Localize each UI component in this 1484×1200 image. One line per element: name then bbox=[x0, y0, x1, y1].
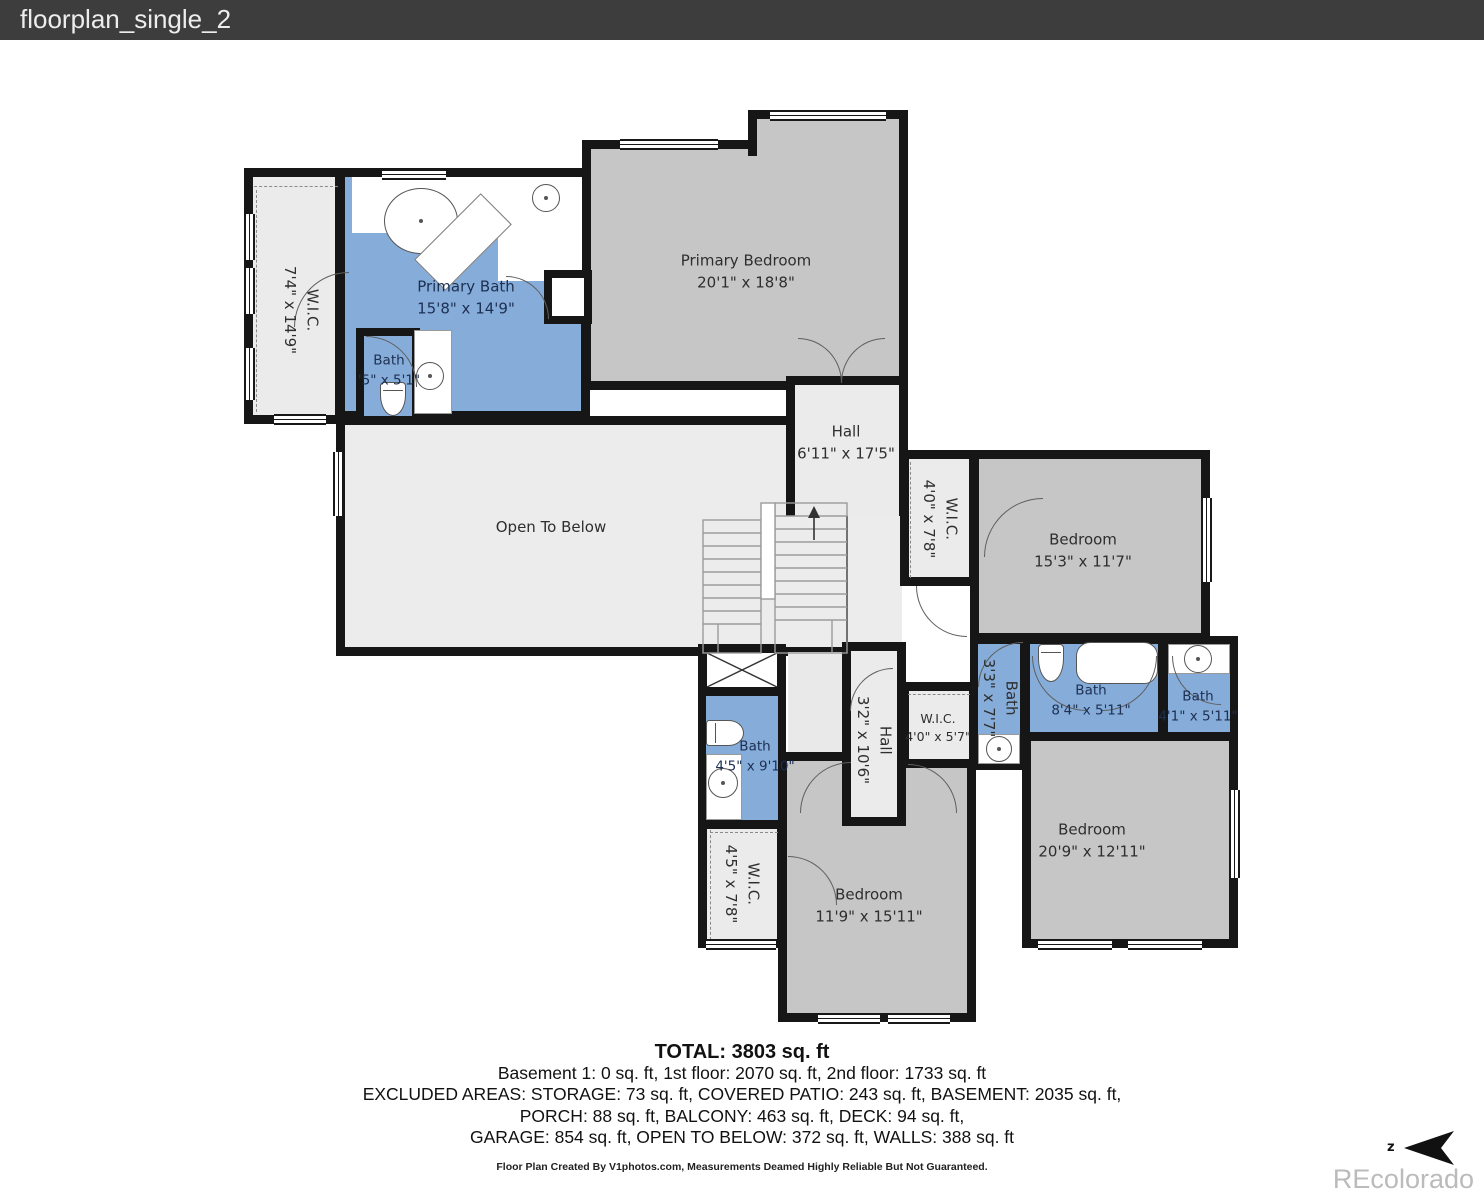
room-label-bedroom-3: Bedroom 11'9" x 15'11" bbox=[815, 884, 922, 928]
window bbox=[818, 1013, 880, 1024]
window bbox=[274, 414, 326, 425]
stair-landing bbox=[848, 508, 902, 648]
sink-icon bbox=[532, 184, 560, 212]
closet-rod-line bbox=[910, 462, 911, 578]
window bbox=[244, 268, 255, 314]
watermark: REcolorado bbox=[1333, 1164, 1474, 1195]
room-label-bath-33: Bath 3'3" x 7'7" bbox=[978, 659, 1023, 738]
x-mark-icon bbox=[707, 653, 777, 687]
window bbox=[1128, 939, 1202, 950]
window bbox=[1038, 939, 1112, 950]
door-arc bbox=[916, 586, 967, 637]
window bbox=[770, 110, 886, 121]
room-label-wic-57: W.I.C. 4'0" x 5'7" bbox=[905, 710, 971, 746]
closet-rod-line bbox=[710, 832, 778, 833]
closet-rod-line bbox=[908, 694, 970, 695]
compass-label: z bbox=[1387, 1140, 1395, 1155]
room-label-bedroom-2: Bedroom 15'3" x 11'7" bbox=[1034, 529, 1132, 573]
window bbox=[244, 214, 255, 260]
window bbox=[888, 1013, 950, 1024]
room-label-primary-bedroom: Primary Bedroom 20'1" x 18'8" bbox=[681, 250, 812, 294]
window bbox=[1229, 790, 1240, 878]
staircase bbox=[702, 502, 848, 654]
window bbox=[333, 452, 344, 516]
room-label-wic-458: W.I.C. 4'5" x 7'8" bbox=[720, 845, 765, 924]
excluded-areas-text-3: GARAGE: 854 sq. ft, OPEN TO BELOW: 372 s… bbox=[0, 1127, 1484, 1148]
screenshot-viewport: floorplan_single_2 bbox=[0, 0, 1484, 1200]
closet-rod-line bbox=[254, 186, 338, 187]
excluded-areas-text-2: PORCH: 88 sq. ft, BALCONY: 463 sq. ft, D… bbox=[0, 1106, 1484, 1127]
window-title: floorplan_single_2 bbox=[20, 4, 231, 35]
excluded-areas-text-1: EXCLUDED AREAS: STORAGE: 73 sq. ft, COVE… bbox=[0, 1084, 1484, 1105]
room-label-bath-45: Bath 4'5" x 9'10" bbox=[715, 737, 794, 776]
closet-rod-line bbox=[256, 190, 257, 412]
area-summary: TOTAL: 3803 sq. ft Basement 1: 0 sq. ft,… bbox=[0, 1042, 1484, 1148]
disclaimer-text: Floor Plan Created By V1photos.com, Meas… bbox=[0, 1161, 1484, 1173]
window bbox=[706, 939, 776, 950]
room-label-bath-84: Bath 8'4" x 5'11" bbox=[1051, 681, 1130, 720]
floor-areas-text: Basement 1: 0 sq. ft, 1st floor: 2070 sq… bbox=[0, 1063, 1484, 1084]
room-label-wic-bedroom2: W.I.C. 4'0" x 7'8" bbox=[918, 480, 963, 559]
sink-icon bbox=[416, 362, 444, 390]
closet-small bbox=[544, 270, 592, 324]
hall-nook bbox=[788, 652, 850, 756]
closet-rod-line bbox=[710, 830, 711, 940]
window bbox=[244, 348, 255, 400]
sink-icon bbox=[986, 736, 1012, 762]
room-label-hall-upper: Hall 6'11" x 17'5" bbox=[797, 421, 895, 465]
room-label-bath-toilet: Bath '5" x 5'1" bbox=[358, 351, 420, 390]
total-area-text: TOTAL: 3803 sq. ft bbox=[0, 1042, 1484, 1063]
window bbox=[620, 139, 718, 150]
window bbox=[382, 169, 446, 180]
room-label-bedroom-4: Bedroom 20'9" x 12'11" bbox=[1038, 819, 1145, 863]
room-label-open-to-below: Open To Below bbox=[496, 517, 607, 539]
window bbox=[1201, 498, 1212, 582]
room-label-bath-41: Bath 4'1" x 5'11" bbox=[1158, 687, 1237, 726]
room-label-primary-bath: Primary Bath 15'8" x 14'9" bbox=[417, 276, 515, 320]
title-bar: floorplan_single_2 bbox=[0, 0, 1484, 40]
room-label-wic-primary: W.I.C. 7'4" x 14'9" bbox=[279, 266, 324, 354]
room-label-hall-lower: Hall 3'2" x 10'6" bbox=[852, 696, 897, 784]
